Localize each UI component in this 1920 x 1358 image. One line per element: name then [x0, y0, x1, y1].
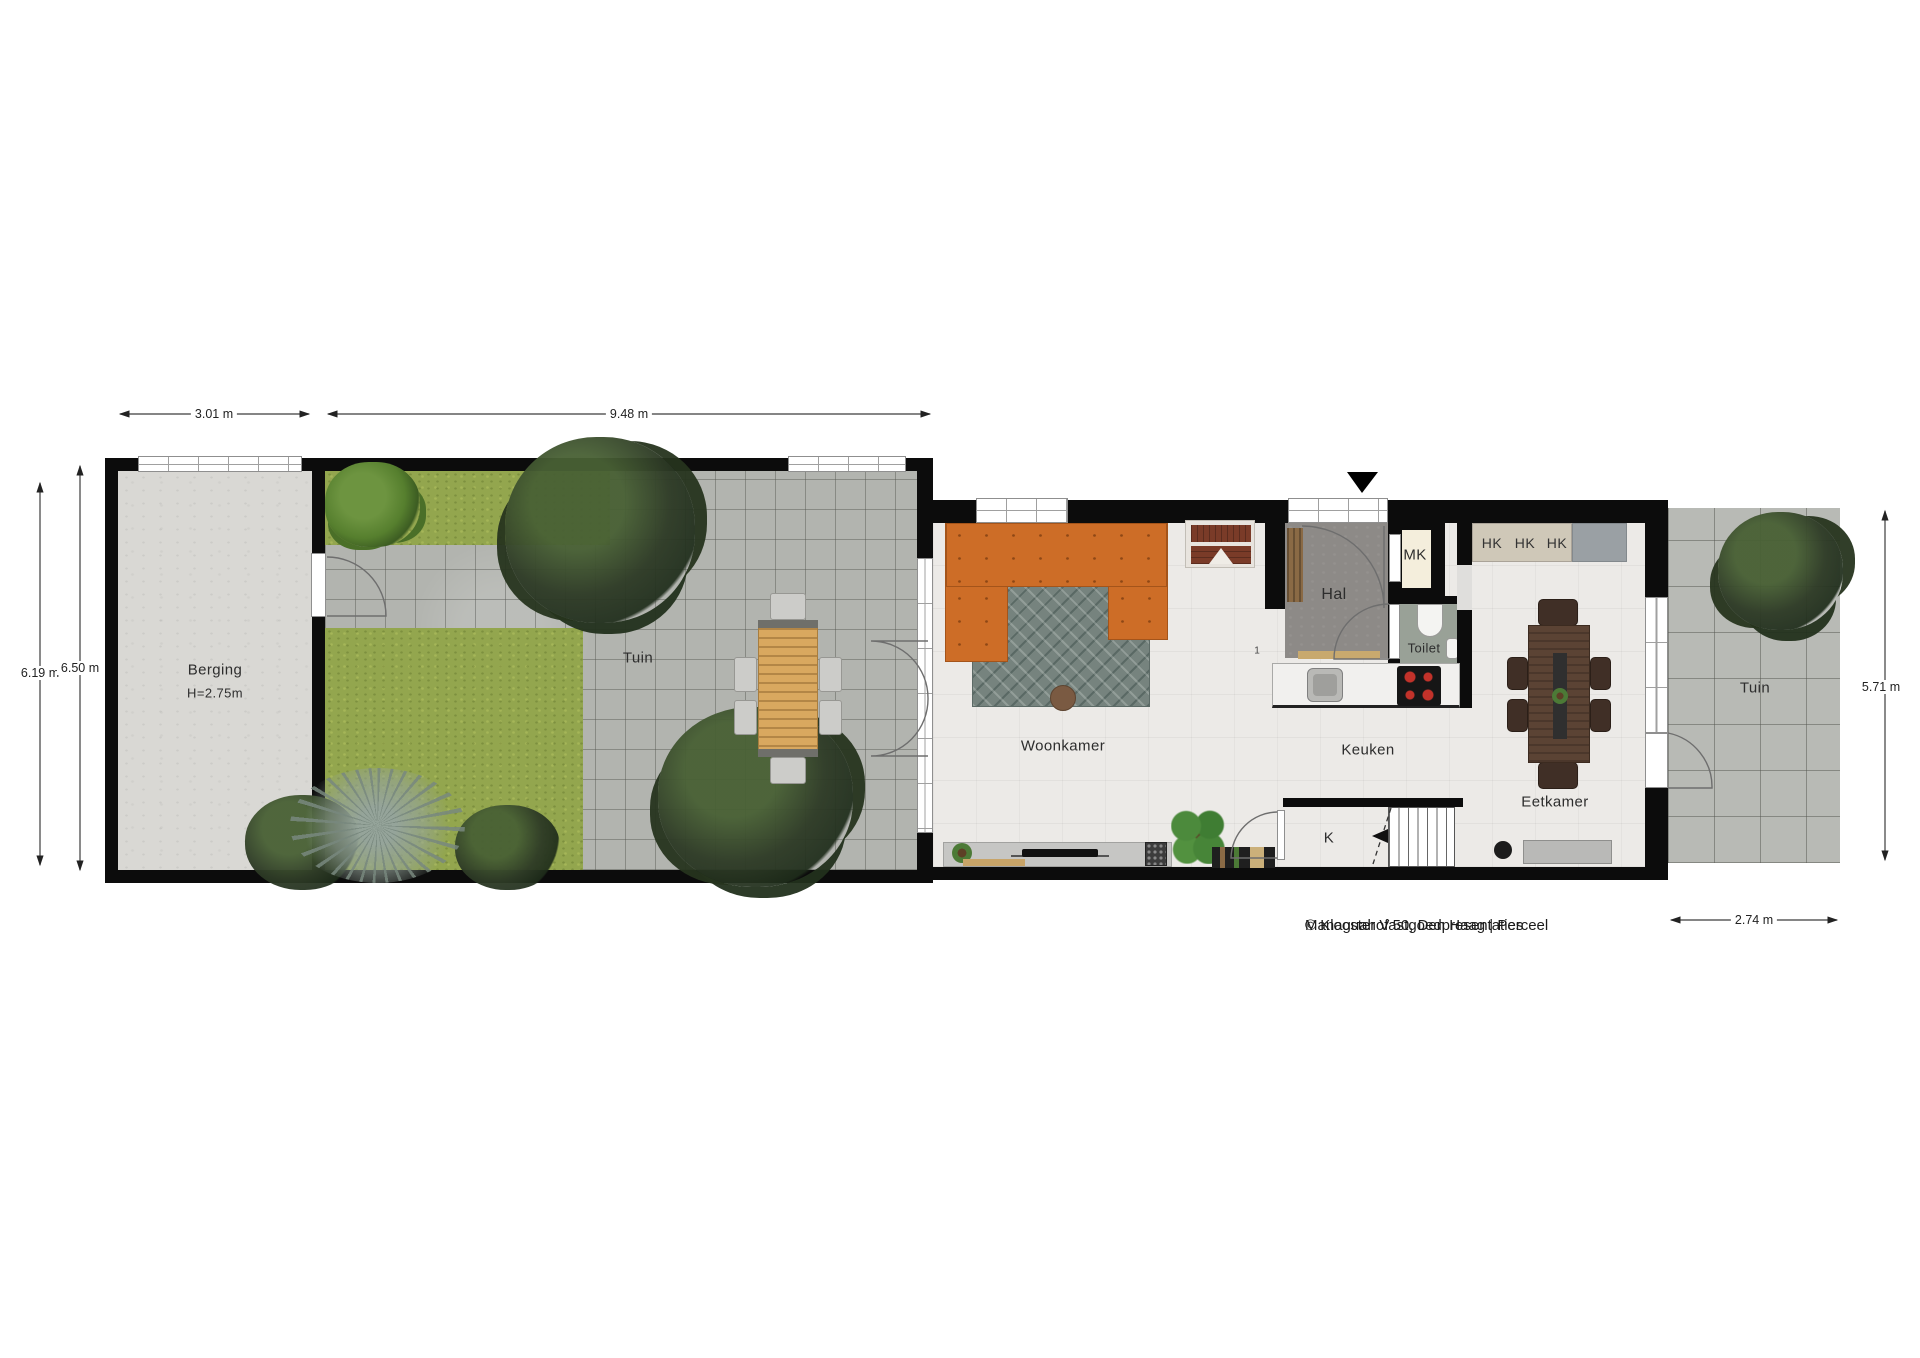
dim-label-garden-width: 9.48 m	[606, 407, 652, 421]
room-label-berging: Berging	[188, 662, 243, 679]
north-arrow-icon	[1347, 472, 1378, 493]
dim-label-berging-width: 3.01 m	[191, 407, 237, 421]
door-arc-garden-doors-bottom	[871, 698, 928, 756]
dim-label-left-outer: 6.50 m	[57, 661, 103, 675]
cupboard-label-hk-2: HK	[1515, 535, 1535, 551]
door-arc-toilet	[1334, 604, 1389, 659]
room-label-eetkamer: Eetkamer	[1521, 794, 1588, 811]
door-arc-stair-closet	[1231, 812, 1277, 858]
room-label-toilet: Toilet	[1408, 641, 1441, 656]
room-label-hal: Hal	[1321, 586, 1346, 604]
stairs-direction-arrow	[1372, 829, 1388, 843]
room-label-berging-height: H=2.75m	[187, 686, 243, 701]
annotation-layer	[0, 0, 1920, 1358]
dim-label-right-height: 5.71 m	[1858, 680, 1904, 694]
door-arc-berging	[327, 557, 386, 616]
room-label-keuken: Keuken	[1341, 742, 1394, 759]
room-label-mk: MK	[1403, 547, 1426, 564]
door-arc-right-garden	[1668, 733, 1712, 788]
door-note: 1	[1254, 646, 1260, 657]
floor-plan-canvas: 3.01 m 9.48 m 6.19 m 6.50 m 5.71 m 2.74 …	[0, 0, 1920, 1358]
room-label-woonkamer: Woonkamer	[1021, 738, 1105, 755]
caption-copyright: © Klooster Vastgoedpresentaties	[1305, 917, 1523, 935]
room-label-stair-closet: K	[1324, 830, 1334, 847]
cupboard-label-hk-1: HK	[1482, 535, 1502, 551]
room-label-tuin-right: Tuin	[1740, 680, 1770, 697]
cupboard-label-hk-3: HK	[1547, 535, 1567, 551]
dim-label-right-width: 2.74 m	[1731, 913, 1777, 927]
room-label-tuin-left: Tuin	[623, 650, 653, 667]
door-arc-garden-doors-top	[871, 641, 928, 698]
